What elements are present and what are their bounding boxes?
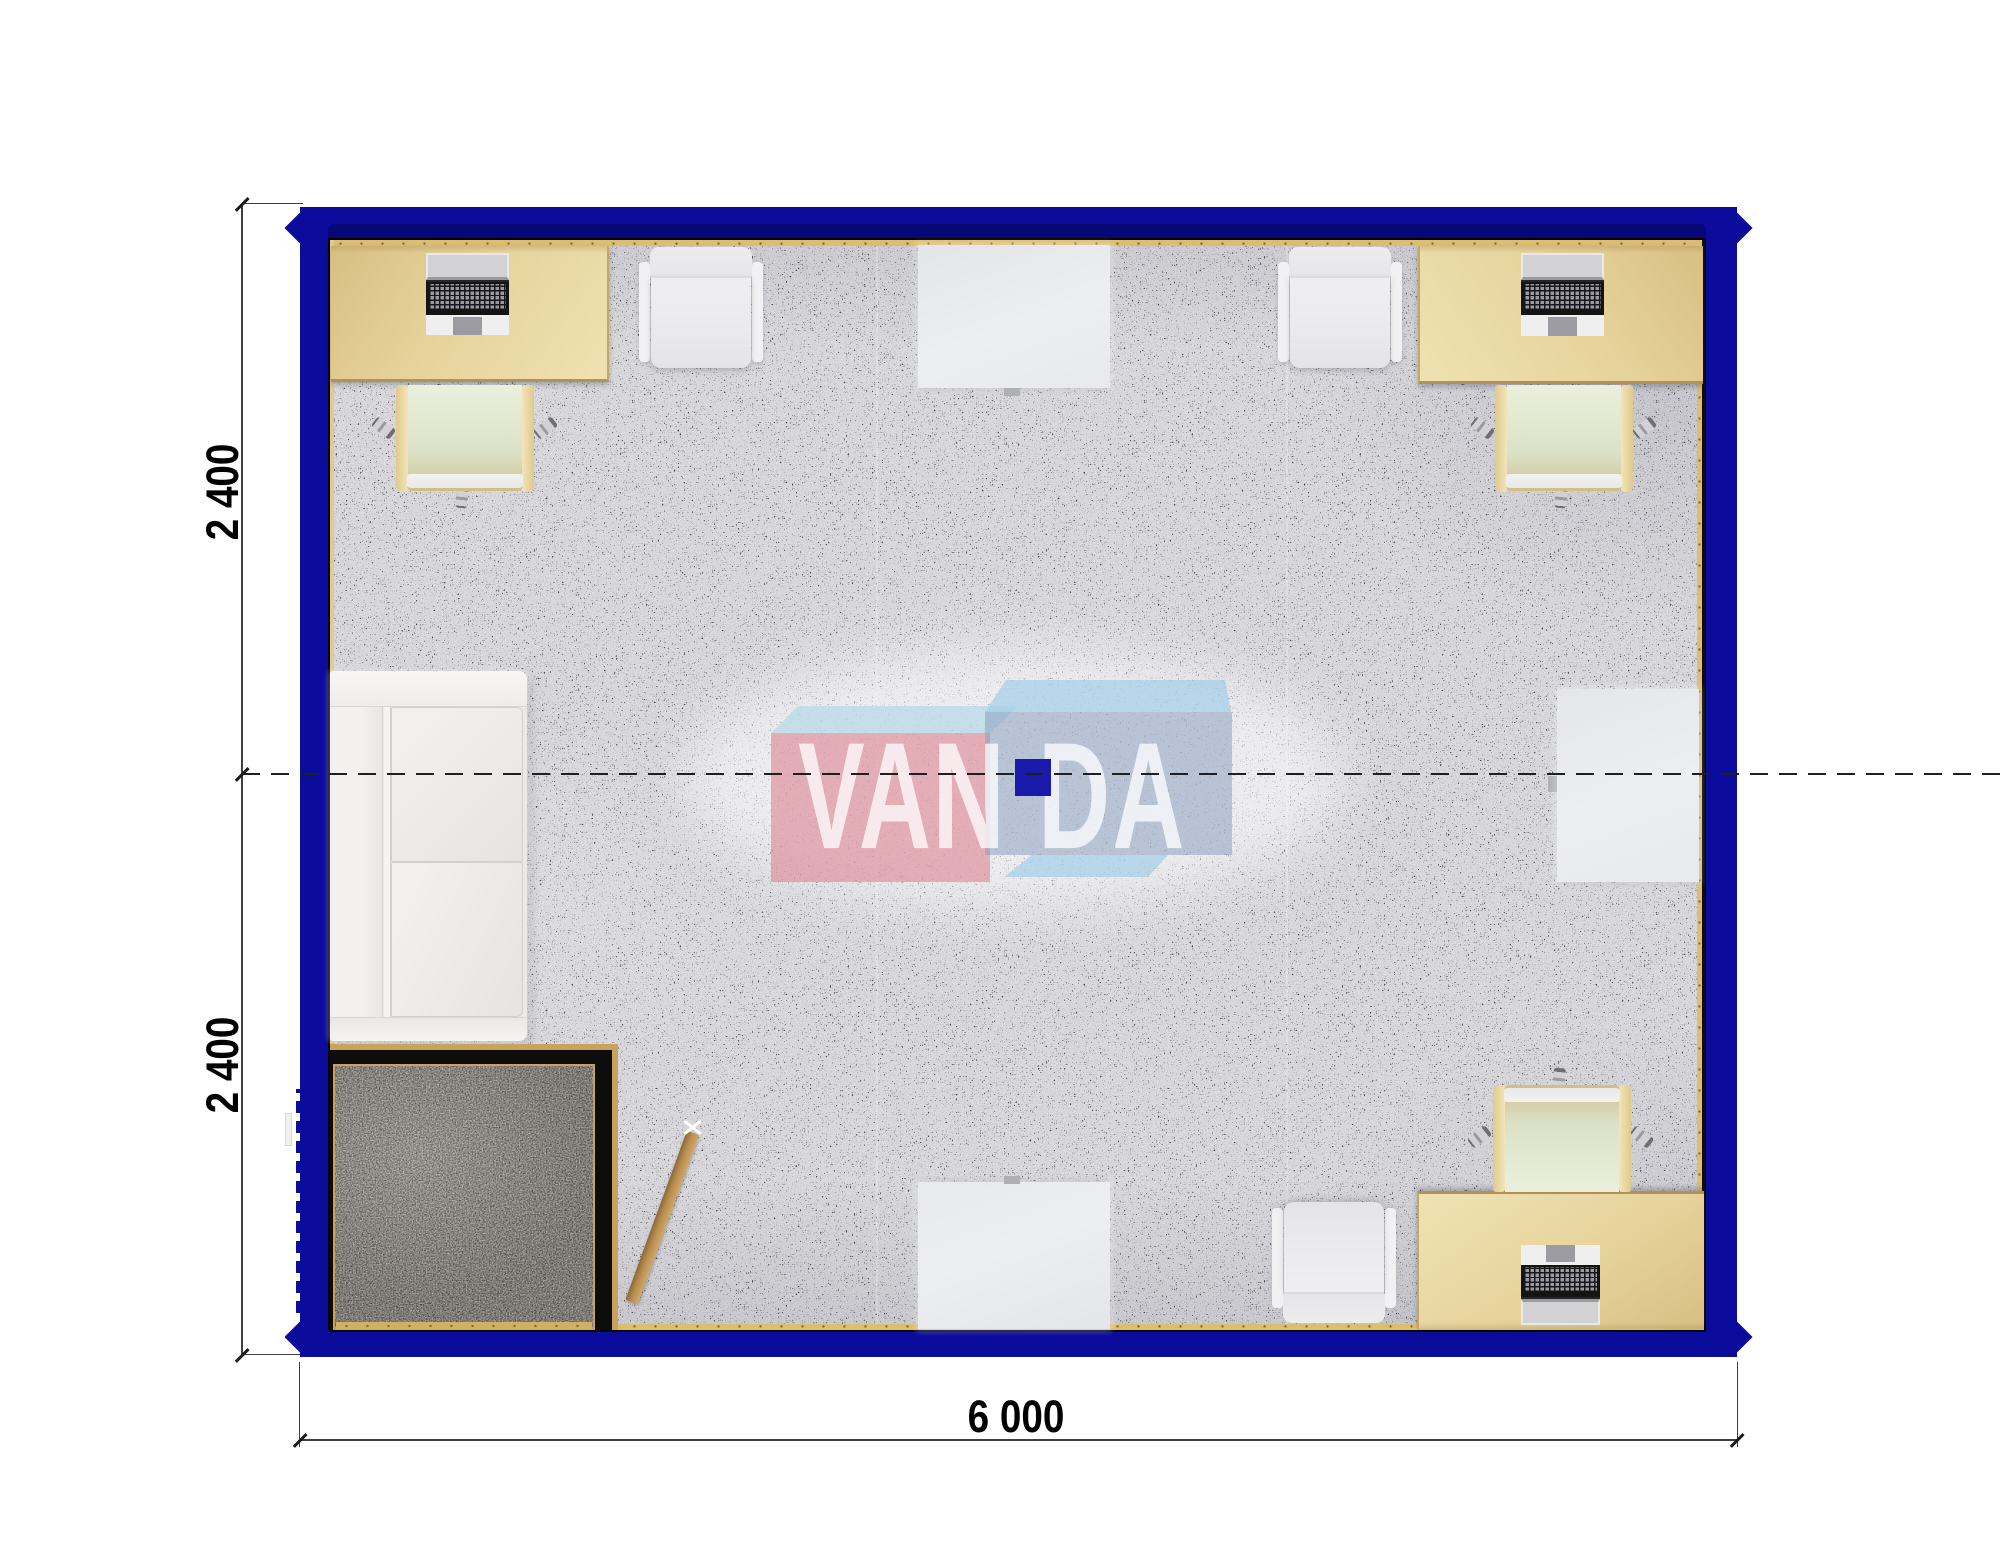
- svg-text:DA: DA: [1038, 712, 1186, 881]
- svg-text:VAN: VAN: [798, 712, 1006, 881]
